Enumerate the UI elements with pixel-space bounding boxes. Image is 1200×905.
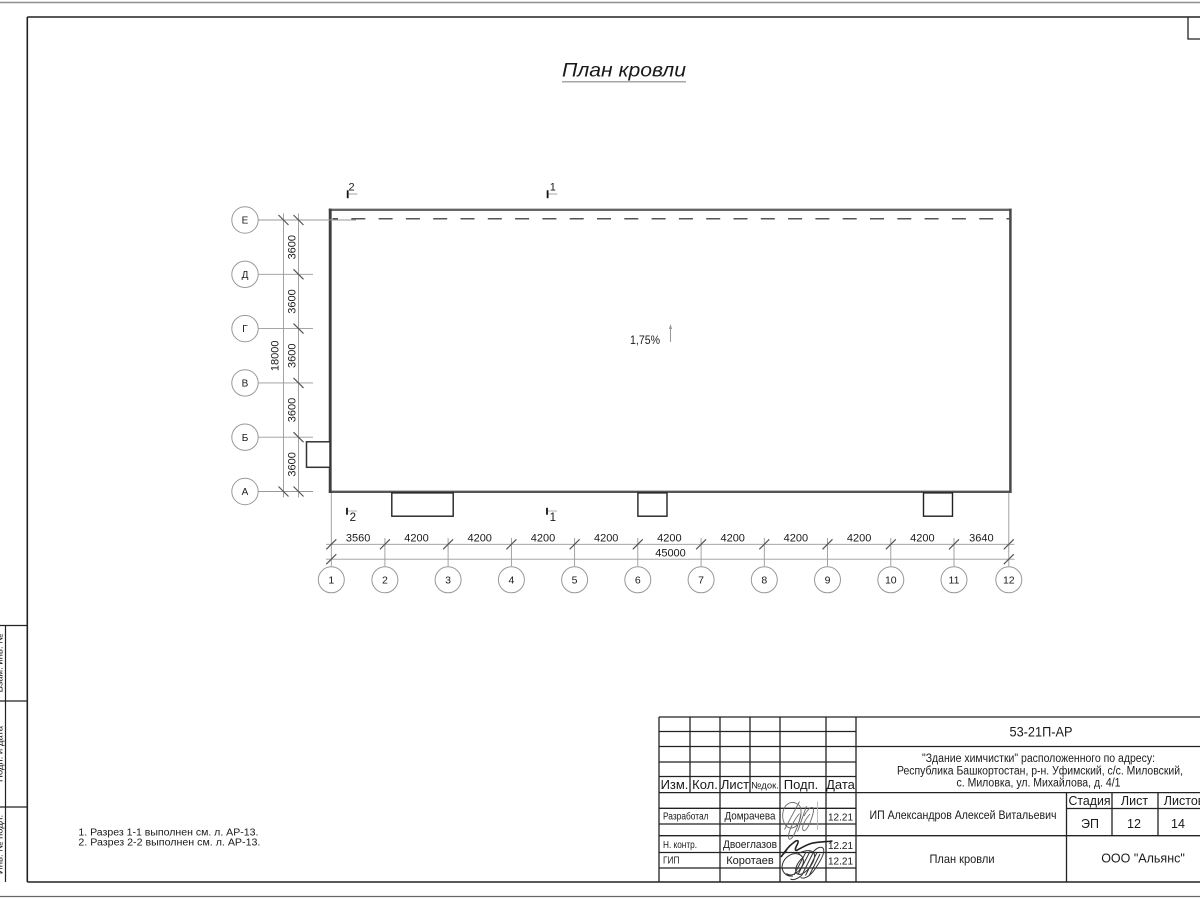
svg-text:"Здание химчистки" расположенн: "Здание химчистки" расположенного по адр… [922, 753, 1155, 765]
svg-text:№док.: №док. [751, 781, 779, 792]
svg-text:Е: Е [242, 216, 249, 227]
svg-text:4200: 4200 [657, 532, 681, 544]
svg-text:Стадия: Стадия [1069, 794, 1111, 808]
svg-text:9: 9 [825, 575, 831, 587]
svg-text:5: 5 [572, 575, 578, 587]
svg-text:4200: 4200 [720, 532, 744, 544]
svg-text:45000: 45000 [655, 547, 686, 559]
svg-text:Листов: Листов [1164, 794, 1200, 808]
svg-text:53-21П-АР: 53-21П-АР [1010, 724, 1073, 740]
svg-text:В: В [242, 379, 249, 390]
svg-text:ООО "Альянс": ООО "Альянс" [1101, 852, 1185, 866]
svg-text:4200: 4200 [467, 532, 491, 544]
svg-text:12.21: 12.21 [828, 812, 853, 823]
svg-text:12: 12 [1127, 817, 1141, 831]
svg-text:2: 2 [382, 575, 388, 587]
svg-text:8: 8 [761, 575, 767, 587]
svg-text:Двоеглазов: Двоеглазов [723, 839, 777, 851]
svg-text:Н. контр.: Н. контр. [663, 840, 697, 851]
svg-text:с. Миловка, ул. Михайлова, д.: с. Миловка, ул. Михайлова, д. 4/1 [957, 778, 1121, 790]
svg-text:1: 1 [328, 575, 334, 587]
svg-text:1: 1 [550, 181, 556, 193]
svg-text:4200: 4200 [531, 532, 555, 544]
svg-text:4200: 4200 [594, 532, 618, 544]
svg-text:3: 3 [445, 575, 451, 587]
svg-text:18000: 18000 [270, 341, 282, 372]
svg-text:4200: 4200 [910, 532, 934, 544]
svg-text:1,75%: 1,75% [630, 333, 660, 347]
svg-text:4: 4 [508, 575, 514, 587]
svg-text:14: 14 [1171, 817, 1185, 831]
svg-text:План кровли: План кровли [930, 852, 995, 866]
svg-text:Д: Д [242, 270, 249, 281]
svg-text:3640: 3640 [969, 532, 993, 544]
svg-text:Лист: Лист [1121, 794, 1148, 808]
svg-text:Коротаев: Коротаев [726, 855, 774, 867]
svg-text:2: 2 [349, 181, 355, 193]
svg-text:3600: 3600 [287, 344, 299, 368]
svg-text:2: 2 [350, 512, 356, 524]
svg-text:Б: Б [242, 433, 249, 444]
svg-text:7: 7 [698, 575, 704, 587]
svg-text:ГИП: ГИП [663, 856, 680, 867]
svg-text:Г: Г [242, 324, 248, 335]
svg-text:Лист: Лист [721, 777, 749, 792]
svg-text:Кол.: Кол. [692, 777, 718, 792]
svg-text:Разработал: Разработал [663, 810, 709, 822]
svg-text:1: 1 [550, 512, 556, 524]
svg-text:Изм.: Изм. [661, 777, 689, 792]
svg-text:12: 12 [1003, 575, 1015, 587]
svg-text:4200: 4200 [847, 532, 871, 544]
svg-text:4200: 4200 [404, 532, 428, 544]
svg-text:ЭП: ЭП [1081, 817, 1099, 831]
svg-text:Подп. и дата: Подп. и дата [0, 725, 6, 782]
svg-text:4200: 4200 [784, 532, 808, 544]
svg-text:Дата: Дата [826, 777, 856, 792]
svg-text:А: А [242, 487, 249, 498]
svg-text:11: 11 [949, 575, 960, 587]
svg-text:12.21: 12.21 [828, 857, 853, 868]
svg-text:3600: 3600 [287, 398, 299, 422]
svg-text:План кровли: План кровли [562, 60, 686, 82]
svg-text:3600: 3600 [287, 289, 299, 313]
svg-text:2. Разрез 2-2 выполнен см. л.: 2. Разрез 2-2 выполнен см. л. АР-13. [78, 838, 260, 849]
svg-text:12.21: 12.21 [828, 841, 853, 852]
svg-text:Подп.: Подп. [784, 777, 819, 792]
svg-text:ИП Александров Алексей Виталье: ИП Александров Алексей Витальевич [870, 808, 1057, 822]
svg-text:3600: 3600 [287, 452, 299, 476]
svg-text:3600: 3600 [287, 235, 299, 259]
svg-text:Домрачева: Домрачева [725, 811, 777, 823]
svg-text:Взам. инв. №: Взам. инв. № [0, 634, 6, 693]
svg-text:3560: 3560 [346, 532, 370, 544]
svg-text:10: 10 [885, 575, 897, 587]
svg-text:Инв. № подл.: Инв. № подл. [0, 815, 6, 874]
svg-text:6: 6 [635, 575, 641, 587]
svg-text:Республика Башкортостан, р-н.: Республика Башкортостан, р-н. Уфимский, … [897, 765, 1183, 777]
